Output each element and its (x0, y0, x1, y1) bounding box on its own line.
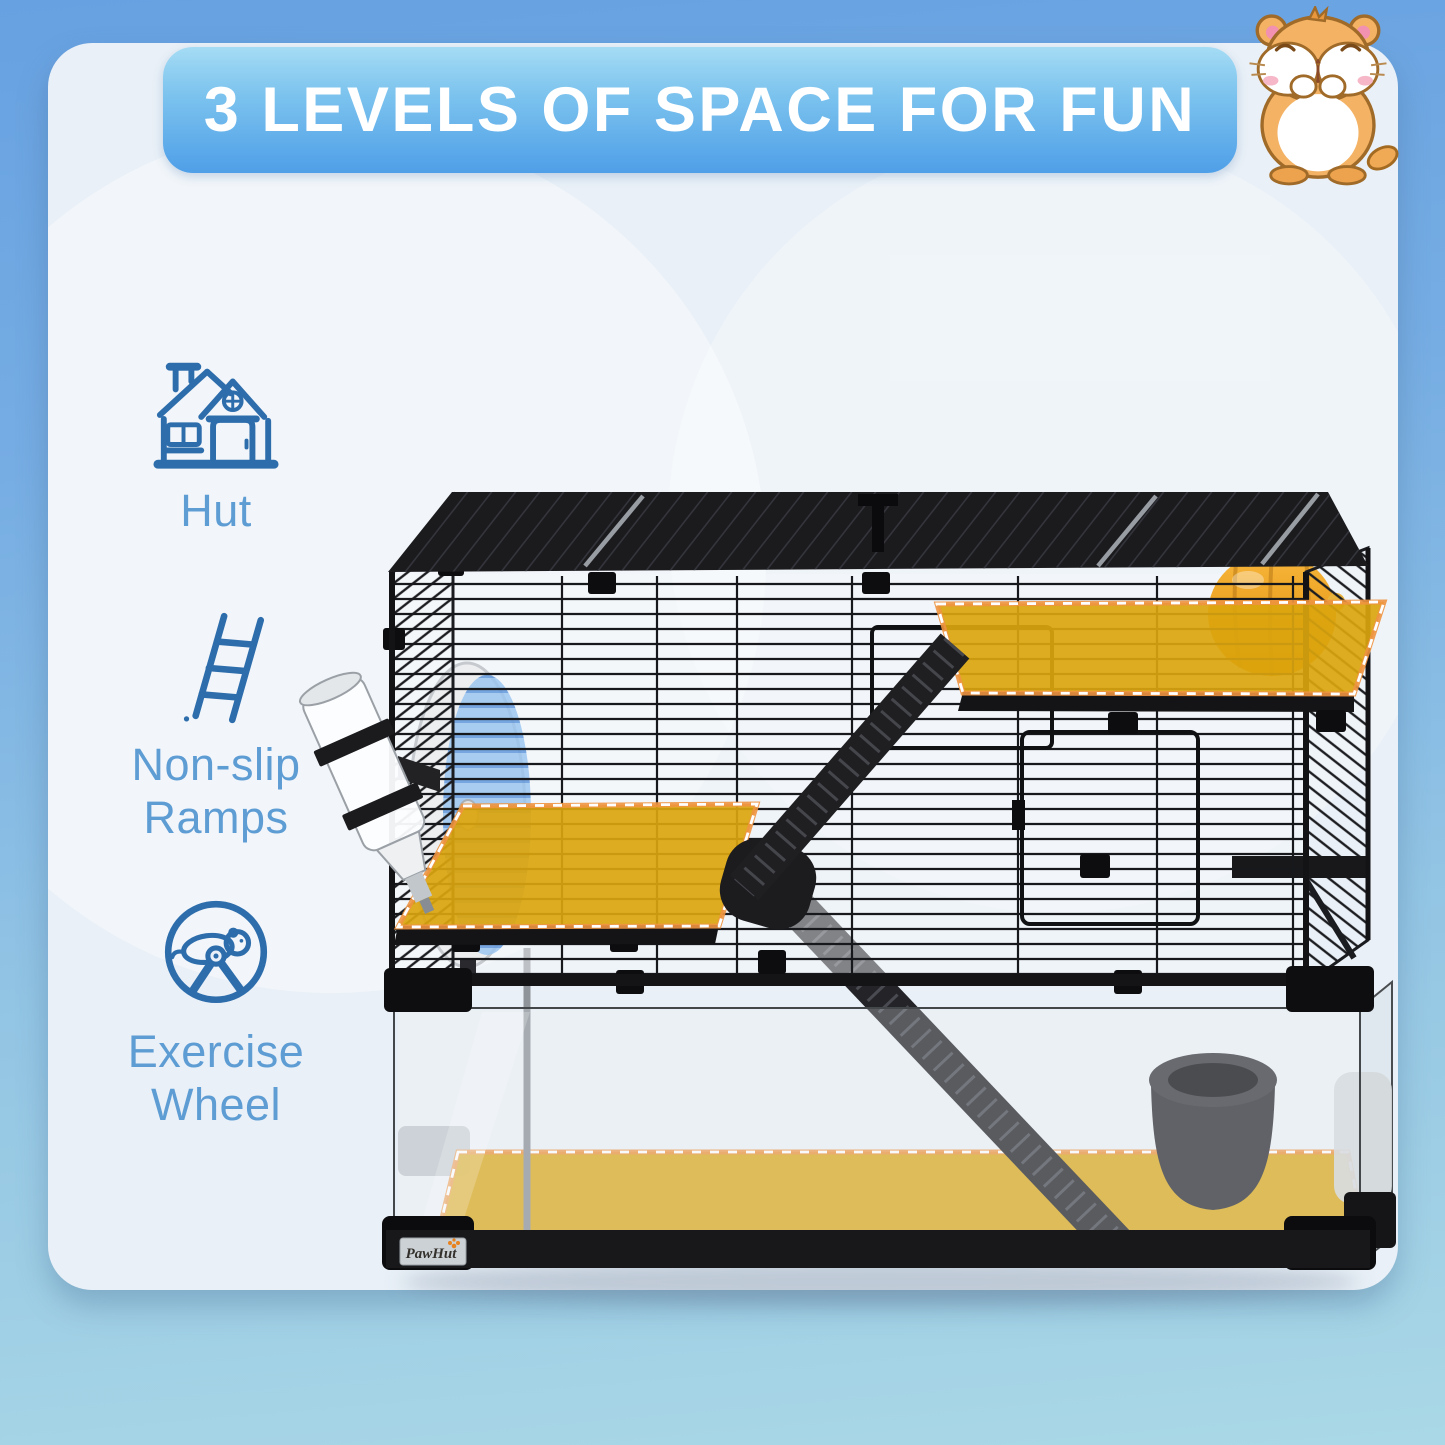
feature-label: Ramps (88, 791, 344, 844)
tank-base (386, 1230, 1370, 1268)
brand-logo: PawHut (400, 1238, 466, 1265)
brand-logo-text: PawHut (406, 1246, 458, 1262)
feature-non-slip-ramps: Non-slip Ramps (88, 606, 344, 844)
feature-label: Wheel (88, 1078, 344, 1131)
right-shelf (1232, 856, 1368, 878)
feature-label: Non-slip (88, 738, 344, 791)
feature-label: Hut (88, 484, 344, 537)
exercise-wheel-icon (155, 893, 277, 1015)
feature-exercise-wheel: Exercise Wheel (88, 893, 344, 1131)
product-infographic: PawHut (0, 0, 1445, 1445)
hamster-illustration (1236, 6, 1400, 192)
glass-front-pane (394, 1008, 1360, 1262)
cage-roof (388, 492, 1368, 572)
page-title: 3 LEVELS OF SPACE FOR FUN (204, 74, 1196, 146)
title-banner: 3 LEVELS OF SPACE FOR FUN (163, 47, 1237, 173)
ladder-icon (164, 606, 268, 728)
feature-label: Exercise (88, 1025, 344, 1078)
feature-hut: Hut (88, 352, 344, 537)
door-latch (1012, 800, 1025, 830)
hut-icon (152, 352, 280, 474)
